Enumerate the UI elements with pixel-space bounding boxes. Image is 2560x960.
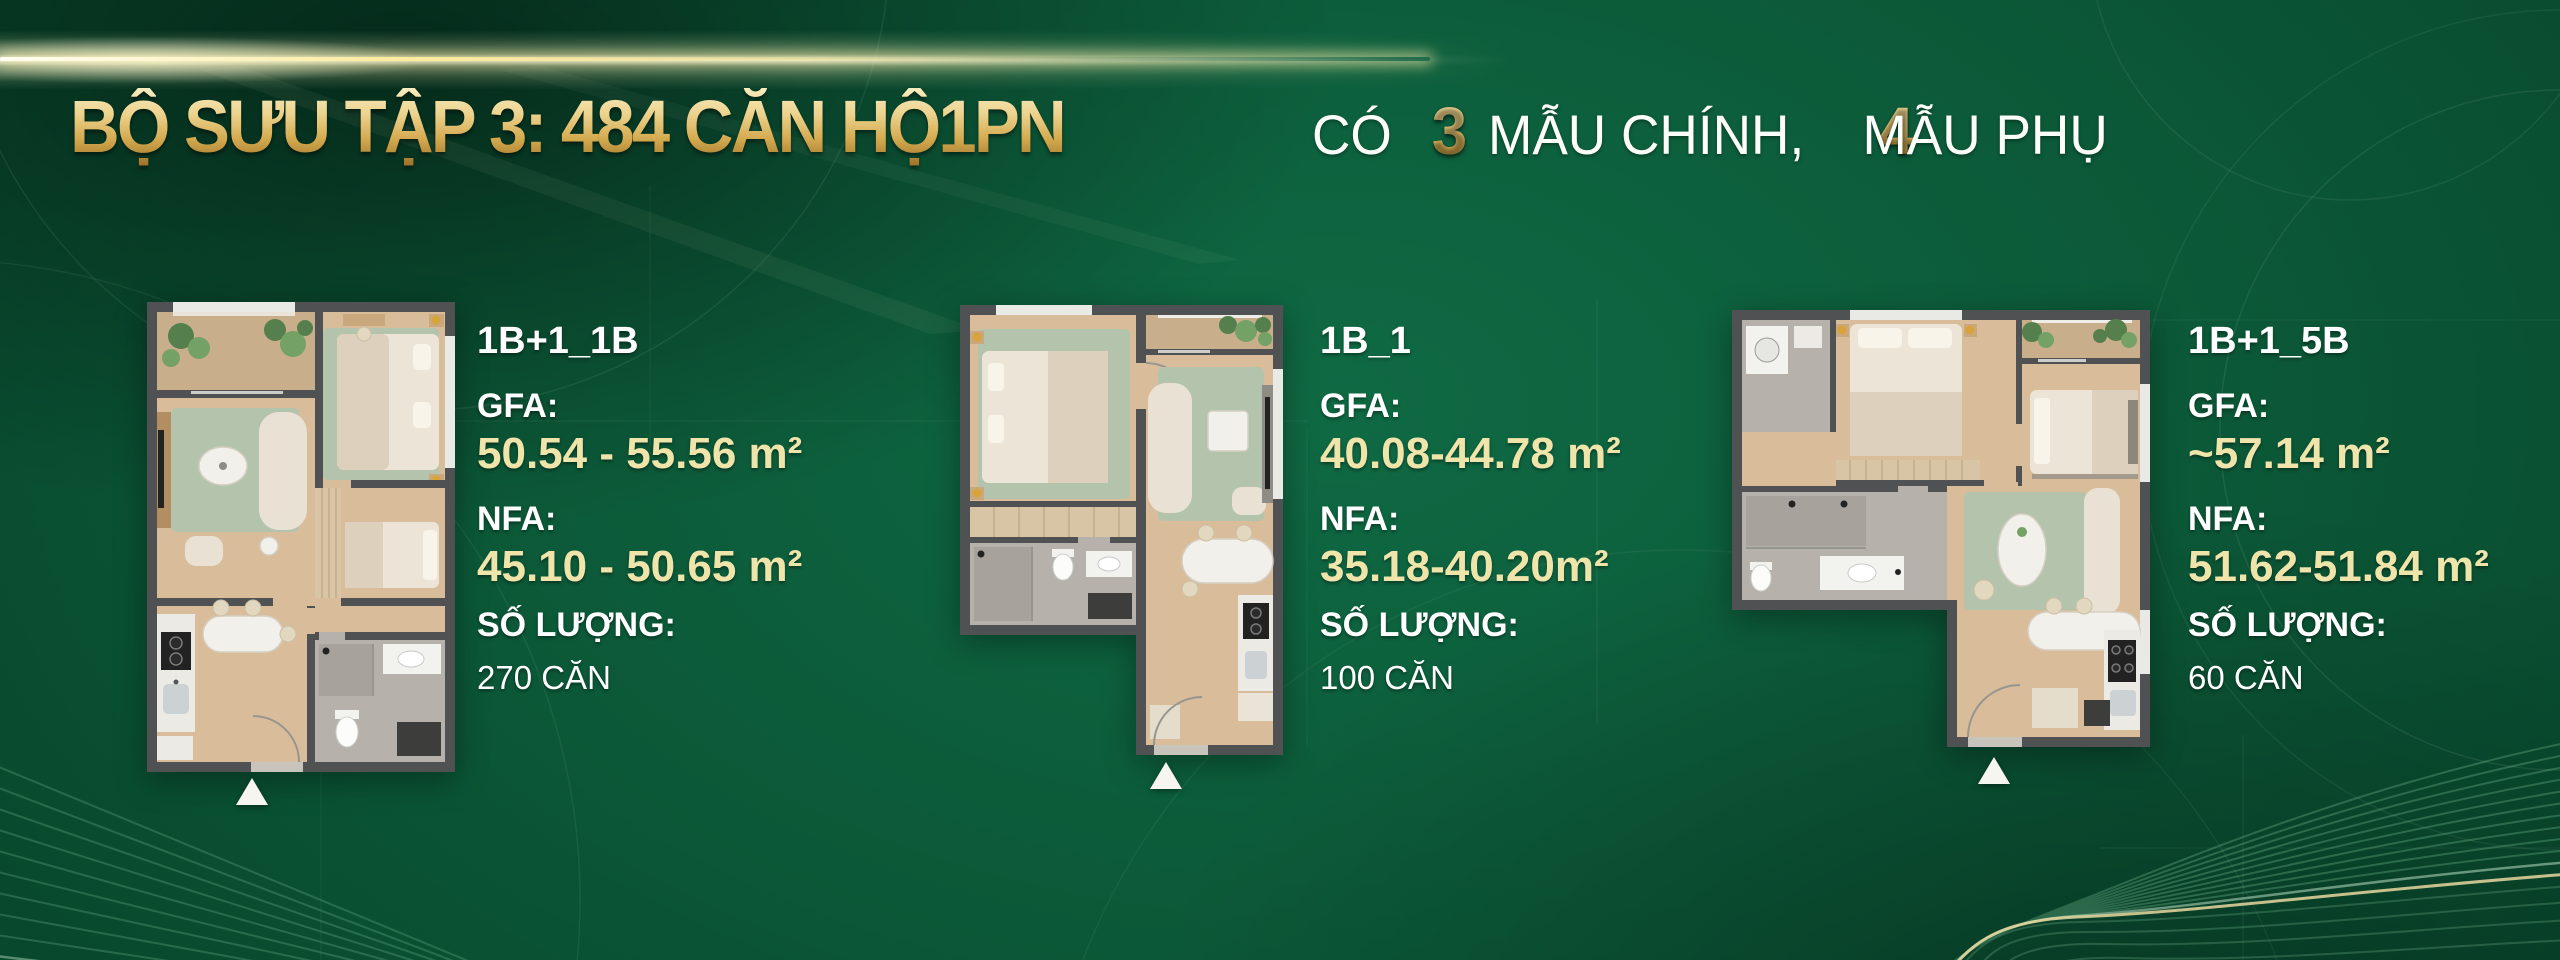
gfa-value: 40.08-44.78 m² [1320,429,1621,479]
gfa-value: 50.54 - 55.56 m² [477,429,802,479]
wardrobe [970,507,1136,537]
gfa-label: GFA: [1320,387,1401,426]
subtitle-prefix: CÓ [1312,101,1392,168]
light-flare-core [0,57,1430,61]
floor-plan-1b-1 [960,305,1283,755]
main-count: 3 [1432,92,1467,172]
living-room [1964,488,2120,614]
living-room [1148,367,1273,521]
entrance-marker [1978,757,2010,784]
balcony [2022,319,2140,364]
nfa-value: 35.18-40.20m² [1320,542,1609,592]
subtitle-suffix: MẪU PHỤ [1862,101,2107,168]
bedroom [970,329,1130,500]
quantity-label: SỐ LƯỢNG: [2188,606,2387,645]
quantity-label: SỐ LƯỢNG: [1320,606,1519,645]
utility-room [1742,320,1836,432]
slide: BỘ SƯU TẬP 3: 484 CĂN HỘ1PN CÓ 3 MẪU CHÍ… [0,0,2560,960]
gfa-value: ~57.14 m² [2188,429,2390,479]
floor-plan-1b1-5b [1732,310,2150,747]
unit-card-2: 1B_1 GFA: 40.08-44.78 m² NFA: 35.18-40.2… [1320,303,1690,723]
balcony [157,312,315,398]
subtitle: CÓ 3 MẪU CHÍNH, 4 MẪU PHỤ [1312,92,2108,172]
bedroom [315,312,445,488]
bathroom [315,632,445,762]
gfa-label: GFA: [2188,387,2269,426]
nfa-value: 45.10 - 50.65 m² [477,542,802,592]
quantity-value: 60 CĂN [2188,659,2304,697]
bathroom [1742,486,1947,600]
nfa-label: NFA: [1320,500,1399,539]
quantity-label: SỐ LƯỢNG: [477,606,676,645]
unit-name: 1B_1 [1320,320,1411,363]
quantity-value: 100 CĂN [1320,659,1454,697]
unit-card-3: 1B+1_5B GFA: ~57.14 m² NFA: 51.62-51.84 … [2188,303,2558,723]
entrance-marker [236,778,268,805]
second-bedroom [2030,390,2138,479]
quantity-value: 270 CĂN [477,659,611,697]
page-title: BỘ SƯU TẬP 3: 484 CĂN HỘ1PN [70,88,1064,166]
nfa-label: NFA: [477,500,556,539]
subtitle-mid: MẪU CHÍNH, [1488,101,1804,168]
unit-name: 1B+1_5B [2188,320,2350,363]
entrance-marker [1150,762,1182,789]
floor-plan-1b1-1b [147,302,455,772]
gfa-label: GFA: [477,387,558,426]
nfa-value: 51.62-51.84 m² [2188,542,2489,592]
bathroom [970,537,1136,625]
balcony [1136,315,1273,355]
unit-name: 1B+1_1B [477,320,639,363]
unit-card-1: 1B+1_1B GFA: 50.54 - 55.56 m² NFA: 45.10… [477,303,847,723]
nfa-label: NFA: [2188,500,2267,539]
